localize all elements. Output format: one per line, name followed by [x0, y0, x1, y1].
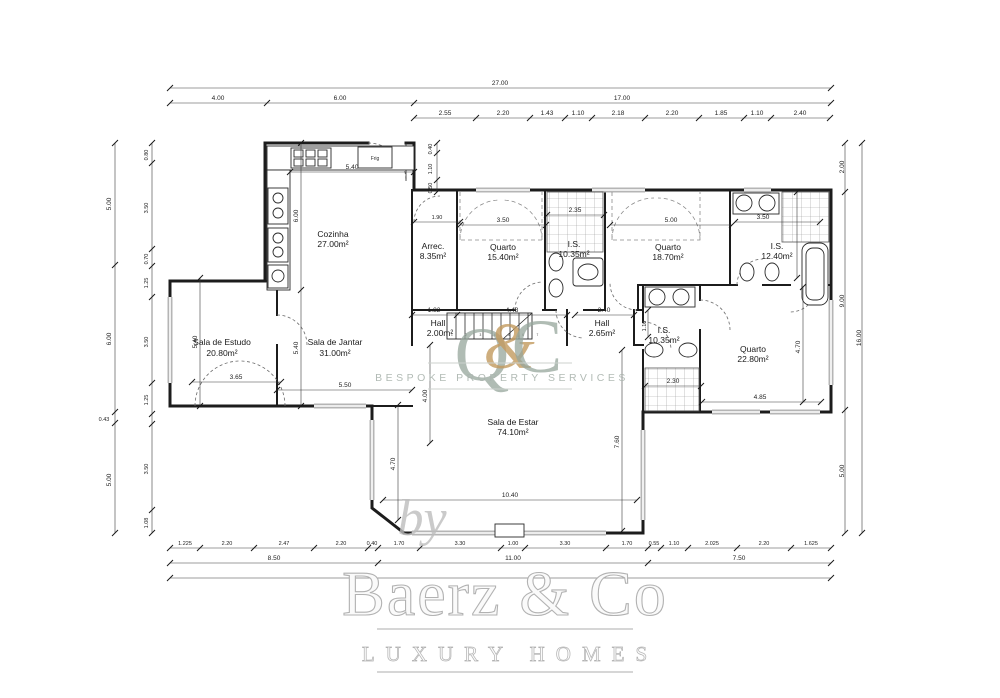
- dim-label: 1.25: [144, 278, 150, 289]
- dim-label: 6.00: [293, 209, 300, 222]
- dim-label: 2.20: [497, 110, 510, 117]
- room-area: 15.40m²: [487, 252, 518, 262]
- bidet-icon: [679, 343, 697, 357]
- center-watermark: Q & C BESPOKE PROPERTY SERVICES: [375, 305, 629, 397]
- dim-label: 1.10: [751, 110, 764, 117]
- dim-label: 1.43: [541, 110, 554, 117]
- room-area: 2.65m²: [589, 328, 616, 338]
- room-area: 31.00m²: [319, 348, 350, 358]
- dim-label: 5.00: [665, 217, 678, 224]
- dim-label: 2.20: [759, 541, 770, 547]
- dim-label: 5.00: [106, 473, 113, 486]
- shower-icon: [645, 368, 699, 411]
- bottom-watermark: by Baerz & Co LUXURY HOMES: [342, 490, 668, 672]
- basin-icon: [736, 195, 752, 211]
- dim-label: 1.00: [508, 541, 519, 547]
- basin-icon: [578, 264, 598, 280]
- stove-icon: [291, 148, 331, 168]
- room-label-quarto3: Quarto: [740, 344, 766, 354]
- dim-label: 2.20: [222, 541, 233, 547]
- dim-label: 1.10: [669, 541, 680, 547]
- dim-label: 0.55: [649, 541, 660, 547]
- fireplace: [495, 524, 524, 537]
- dim-label: 1.70: [622, 541, 633, 547]
- dim-label: 1.08: [144, 518, 150, 529]
- dim-label: 7.60: [614, 435, 621, 448]
- dim-label: 2.47: [279, 541, 290, 547]
- toilet-icon: [740, 263, 754, 281]
- dim-label: 17.00: [614, 95, 631, 102]
- room-label-cozinha: Cozinha: [317, 229, 348, 239]
- dim-label: 2.18: [612, 110, 625, 117]
- dim-label: 2.20: [666, 110, 679, 117]
- dim-label: 2.025: [705, 541, 719, 547]
- dim-label: 9.00: [839, 294, 846, 307]
- dim-label: 0.70: [144, 254, 150, 265]
- fridge-label: Frig: [371, 156, 380, 162]
- room-area: 27.00m²: [317, 239, 348, 249]
- dim-label: 3.50: [144, 203, 150, 214]
- basin-icon: [759, 195, 775, 211]
- dim-label: 3.30: [455, 541, 466, 547]
- dim-label: 1.10: [642, 321, 648, 332]
- room-area: 74.10m²: [497, 427, 528, 437]
- room-label-is2: I.S.: [771, 241, 784, 251]
- dim-label: 1.25: [144, 395, 150, 406]
- dim-label: 1.90: [432, 215, 443, 221]
- shower-icon: [782, 192, 829, 242]
- dim-label: 0.80: [144, 150, 150, 161]
- dim-label: 3.50: [757, 214, 770, 221]
- room-label-is3: I.S.: [658, 325, 671, 335]
- room-label-jantar: Sala de Jantar: [308, 337, 363, 347]
- room-area: 10.35m²: [558, 249, 589, 259]
- dim-label: 4.85: [754, 394, 767, 401]
- dim-label: 2.30: [667, 378, 680, 385]
- sink-icon: [268, 188, 288, 288]
- dim-label: 5.50: [339, 382, 352, 389]
- dim-label: 6.00: [106, 332, 113, 345]
- basin-icon: [673, 289, 689, 305]
- dim-label: 2.20: [336, 541, 347, 547]
- dim-label: 3.50: [497, 217, 510, 224]
- dim-label: 3.30: [560, 541, 571, 547]
- dim-label: 4.00: [422, 389, 429, 402]
- room-area: 12.40m²: [761, 251, 792, 261]
- dim-label: 1.85: [715, 110, 728, 117]
- dim-label: 5.40: [293, 341, 300, 354]
- dim-label: 0.50: [428, 183, 434, 194]
- dim-label: 8.50: [268, 555, 281, 562]
- dim-label: 2.35: [569, 207, 582, 214]
- room-area: 10.35m²: [648, 335, 679, 345]
- dim-label: 2.00: [839, 160, 846, 173]
- room-label-hall1: Hall: [431, 318, 446, 328]
- dim-label: 6.00: [334, 95, 347, 102]
- dim-label: 3.50: [144, 337, 150, 348]
- basin-icon: [649, 289, 665, 305]
- dim-label: 5.00: [839, 464, 846, 477]
- room-label-arrec: Arrec.: [422, 241, 445, 251]
- dim-label: 1.625: [804, 541, 818, 547]
- dim-top-total: 27.00: [492, 80, 509, 87]
- dim-label: 5.40: [346, 164, 359, 171]
- bidet-icon: [549, 279, 563, 297]
- room-label-quarto2: Quarto: [655, 242, 681, 252]
- brand-tagline: LUXURY HOMES: [362, 642, 658, 666]
- dim-label: 2.55: [439, 110, 452, 117]
- dim-label: 10.40: [502, 492, 519, 499]
- logo-tagline: BESPOKE PROPERTY SERVICES: [375, 372, 629, 384]
- dim-label: 4.70: [390, 457, 397, 470]
- brand-name: Baerz & Co: [342, 558, 668, 629]
- room-label-quarto1: Quarto: [490, 242, 516, 252]
- dim-label: 1.10: [428, 164, 434, 175]
- dim-label: 7.50: [733, 555, 746, 562]
- floor-plan-page: Frig 1 2 3 4 5 6 7: [0, 0, 1000, 698]
- room-label-estudo: Sala de Estudo: [193, 337, 251, 347]
- dim-label: 0.40: [428, 144, 434, 155]
- dim-label: 5.00: [106, 197, 113, 210]
- room-area: 2.00m²: [427, 328, 454, 338]
- toilet-icon: [645, 343, 663, 357]
- room-area: 22.80m²: [737, 354, 768, 364]
- dim-label: 0.40: [367, 541, 378, 547]
- room-label-is1: I.S.: [568, 239, 581, 249]
- fridge-icon: Frig: [358, 147, 392, 168]
- dim-label: 2.40: [598, 307, 611, 314]
- dim-label: 3.50: [144, 464, 150, 475]
- room-area: 18.70m²: [652, 252, 683, 262]
- room-label-hall2: Hall: [595, 318, 610, 328]
- bidet-icon: [765, 263, 779, 281]
- dim-label: 1.10: [572, 110, 585, 117]
- dim-label: 1.82: [428, 307, 441, 314]
- dim-label: 1.225: [178, 541, 192, 547]
- bathroom3-fixtures: [645, 287, 699, 411]
- dim-label: 4.00: [212, 95, 225, 102]
- kitchen-fixtures: Frig: [267, 146, 414, 290]
- dim-label: 0.43: [99, 417, 110, 423]
- dim-right-total: 16.00: [856, 329, 863, 346]
- room-label-estar: Sala de Estar: [487, 417, 538, 427]
- dim-label: 3.65: [230, 374, 243, 381]
- room-area: 20.80m²: [206, 348, 237, 358]
- by-script: by: [397, 490, 447, 547]
- dim-label: 4.70: [795, 340, 802, 353]
- dim-label: 2.40: [794, 110, 807, 117]
- room-area: 8.35m²: [420, 251, 447, 261]
- floor-plan-svg: Frig 1 2 3 4 5 6 7: [0, 0, 1000, 698]
